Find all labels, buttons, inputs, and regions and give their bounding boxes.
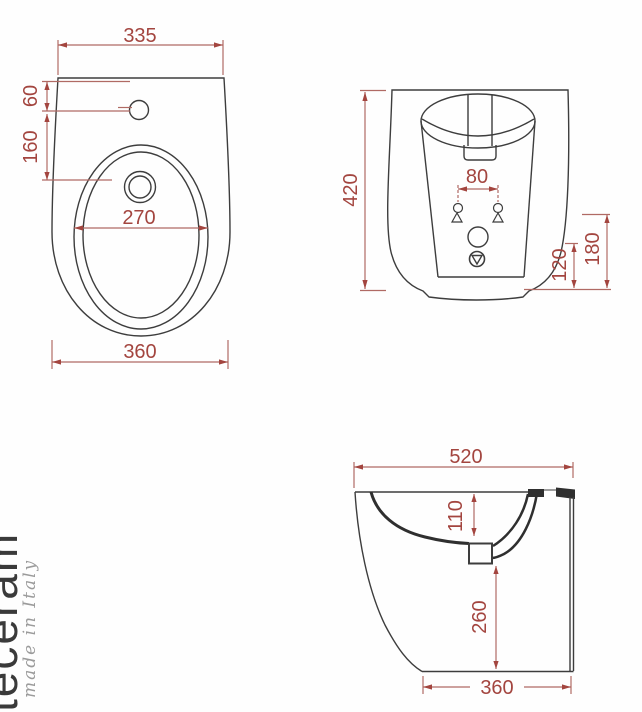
side-drain-box [469,544,492,564]
dim-side-rim-to-drain: 110 [445,500,467,532]
side-rim-section-right [556,488,575,500]
front-view [388,90,569,300]
made-in-italy-watermark: made in Italy [20,559,40,698]
dim-side-drain-to-floor: 260 [469,600,491,633]
technical-drawing: 335 60 160 270 360 [0,0,642,700]
front-basin-rim [421,94,535,148]
front-body-outline [388,90,569,300]
inlet-hole [468,227,488,247]
bowl-inner-rim [83,152,199,318]
fixing-hole-left [454,204,463,213]
bidet-dimension-drawing: 335 60 160 270 360 [0,0,642,700]
faucet-hole [130,101,149,120]
fixing-mark-right [493,213,503,222]
fixing-hole-right [494,204,503,213]
fixing-mark-left [452,213,462,222]
dim-front-hole-spacing: 80 [466,166,488,188]
front-dimensions [360,91,611,291]
side-trap-inner [493,494,528,546]
plan-dimensions [42,40,228,369]
dim-plan-faucet-to-drain: 160 [20,130,42,163]
bowl-outer-rim [74,145,208,329]
drain-symbol-triangle [472,256,482,265]
dim-plan-width-top: 335 [123,25,156,47]
drain-inner [129,176,151,198]
dim-plan-bowl-width: 270 [122,207,155,229]
front-basin-inner-edge [422,119,534,136]
dim-side-base-depth: 360 [480,677,513,699]
dim-plan-width-bottom: 360 [123,341,156,363]
dim-plan-faucet-offset: 60 [20,85,42,107]
dim-front-inlet-height: 180 [582,232,604,265]
dim-front-height: 420 [340,173,362,206]
dim-front-drain-height: 120 [549,248,571,281]
dim-side-depth: 520 [449,446,482,468]
